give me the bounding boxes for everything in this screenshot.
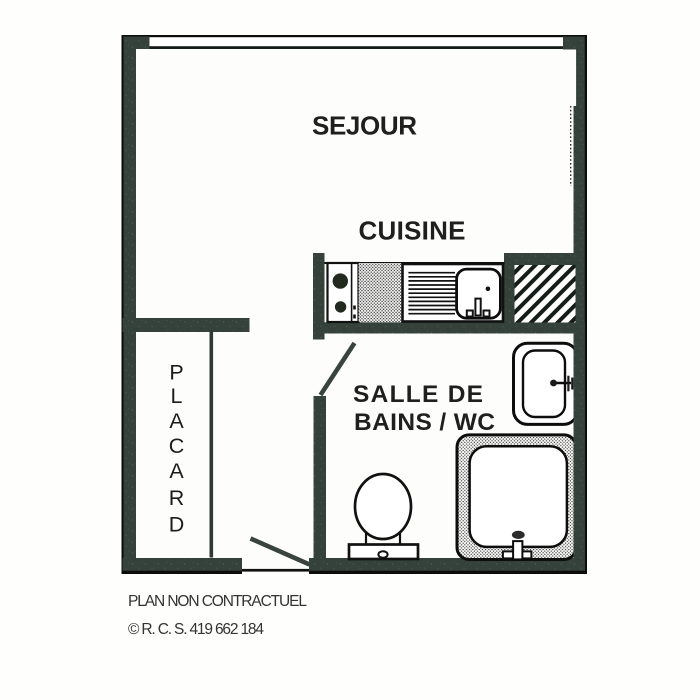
svg-text:C: C [169, 434, 185, 458]
svg-text:BAINS / WC: BAINS / WC [354, 409, 495, 436]
svg-text:PLAN NON CONTRACTUEL: PLAN NON CONTRACTUEL [128, 593, 307, 610]
svg-text:SALLE DE: SALLE DE [353, 381, 483, 408]
svg-text:P: P [169, 360, 183, 384]
svg-text:© R. C. S. 419 662 184: © R. C. S. 419 662 184 [128, 621, 264, 638]
svg-text:D: D [169, 513, 185, 537]
svg-text:A: A [169, 459, 184, 483]
svg-text:L: L [171, 384, 183, 408]
svg-text:CUISINE: CUISINE [359, 216, 466, 246]
svg-text:A: A [169, 409, 184, 433]
svg-text:SEJOUR: SEJOUR [312, 111, 417, 141]
svg-text:R: R [169, 486, 185, 510]
